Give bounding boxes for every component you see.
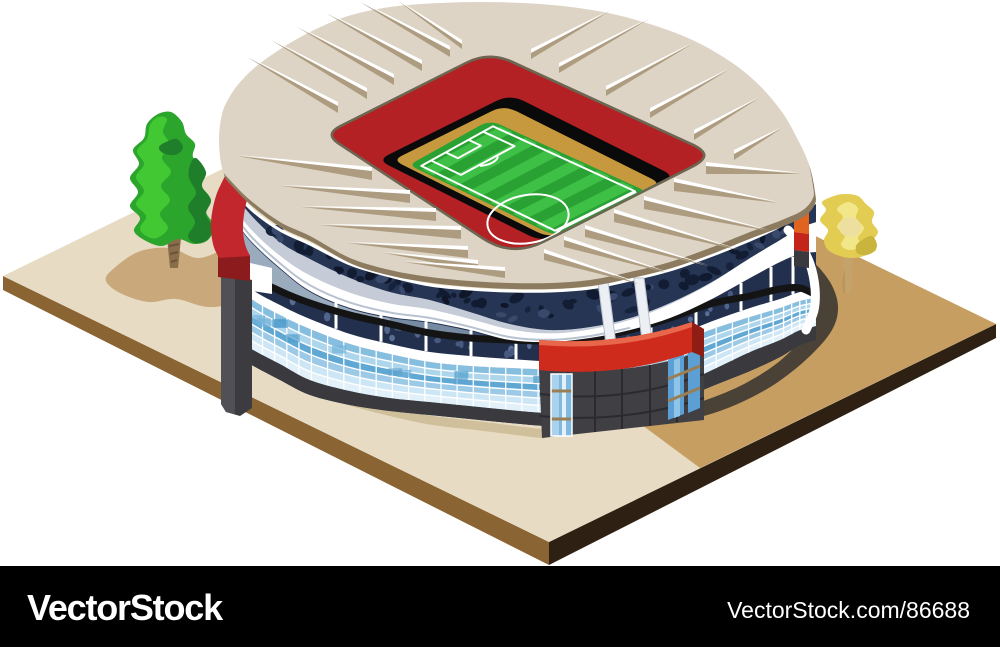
svg-text:VectorStock: VectorStock: [27, 587, 224, 628]
svg-text:VectorStock.com/86688: VectorStock.com/86688: [727, 597, 970, 623]
